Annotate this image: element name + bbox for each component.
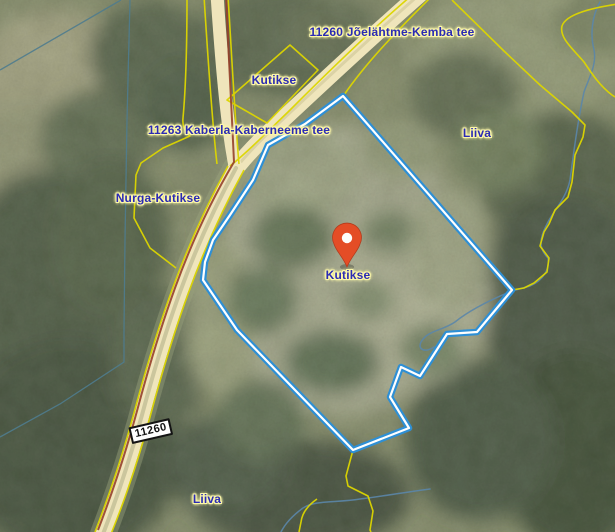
map-viewport[interactable]: 11260 Jõelähtme-Kemba tee Kutikse 11263 … (0, 0, 615, 532)
map-canvas[interactable] (0, 0, 615, 532)
